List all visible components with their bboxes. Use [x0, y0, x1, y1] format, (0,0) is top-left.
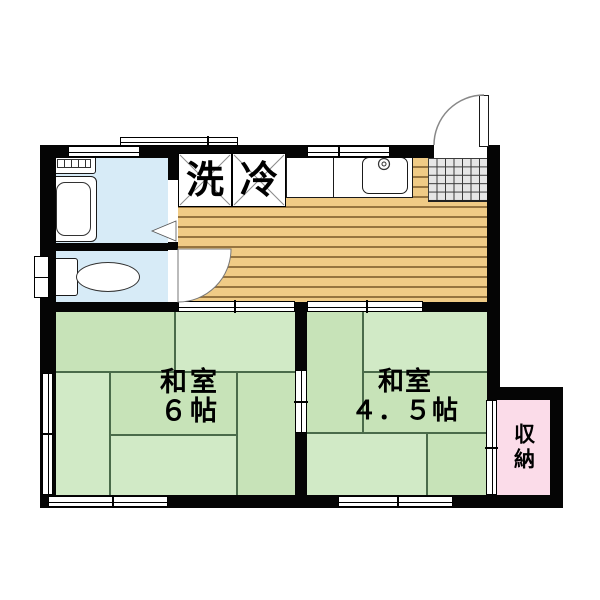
refrigerator-box: 冷 [232, 153, 286, 207]
room6-size: ６帖 [100, 397, 280, 426]
refrigerator-label: 冷 [240, 161, 278, 199]
faucet-icon [379, 159, 390, 170]
room45-name: 和室 [320, 368, 490, 397]
floor-plan: 洗 冷 和室 ６帖 和室 ４．５帖 収納 [0, 0, 600, 600]
tatami-room-45-label: 和室 ４．５帖 [320, 368, 490, 426]
bath-folding-door-icon [152, 221, 176, 241]
room6-name: 和室 [100, 368, 280, 397]
storage-label: 収納 [497, 412, 550, 484]
tatami-room-6-label: 和室 ６帖 [100, 368, 280, 426]
entrance-door-swing-arc [434, 95, 484, 145]
washing-machine-label: 洗 [186, 161, 224, 199]
washing-machine-box: 洗 [178, 153, 232, 207]
plan-decorations [0, 0, 600, 600]
toilet-door-swing-arc [178, 249, 231, 302]
room45-size: ４．５帖 [320, 397, 490, 426]
